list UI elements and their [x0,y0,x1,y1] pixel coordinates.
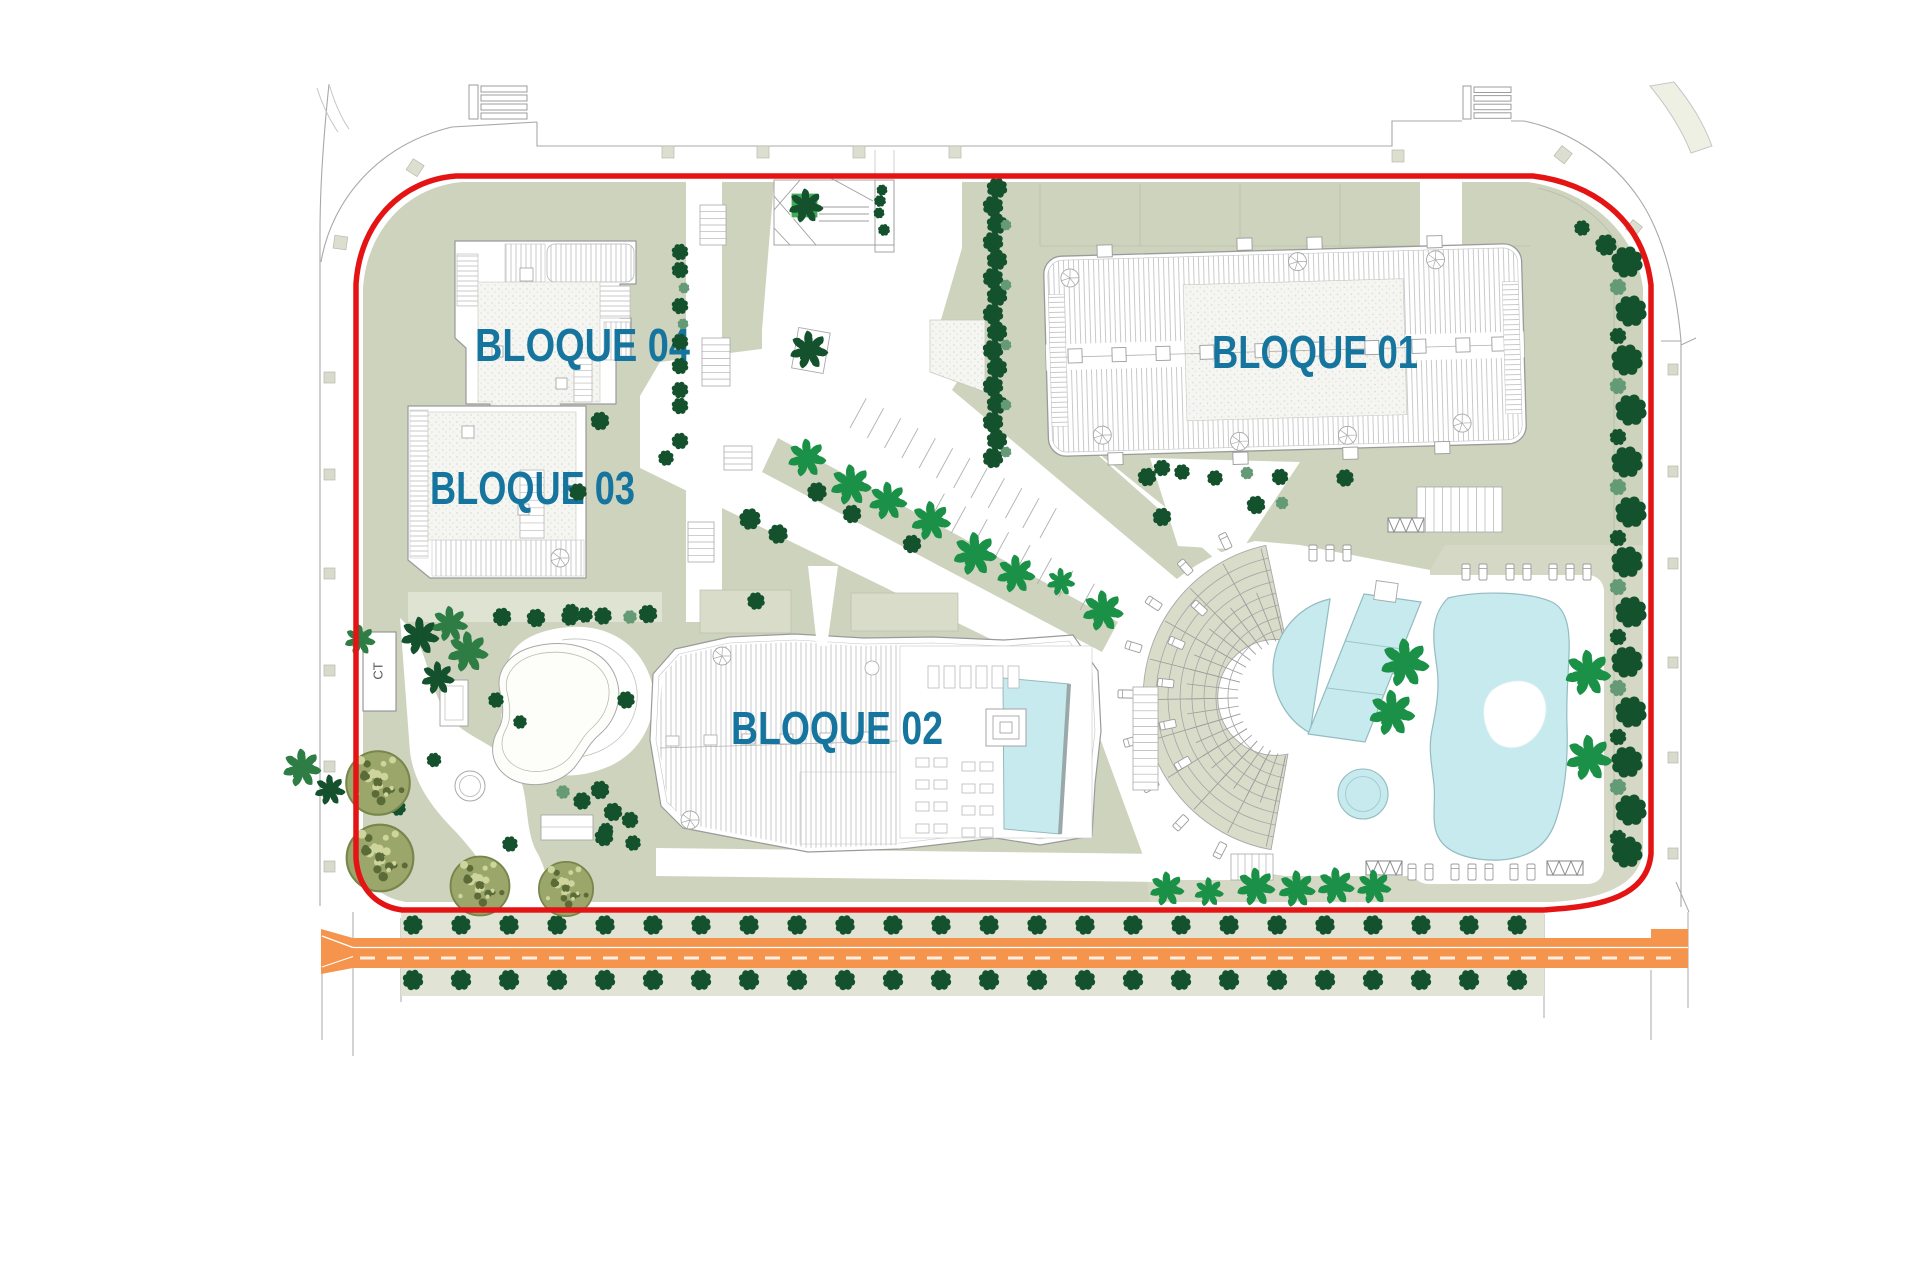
svg-text:BLOQUE 04: BLOQUE 04 [475,319,690,371]
svg-text:CT: CT [370,662,385,679]
svg-text:BLOQUE 03: BLOQUE 03 [430,462,635,514]
svg-text:BLOQUE 02: BLOQUE 02 [731,702,943,754]
svg-text:BLOQUE 01: BLOQUE 01 [1212,326,1418,378]
